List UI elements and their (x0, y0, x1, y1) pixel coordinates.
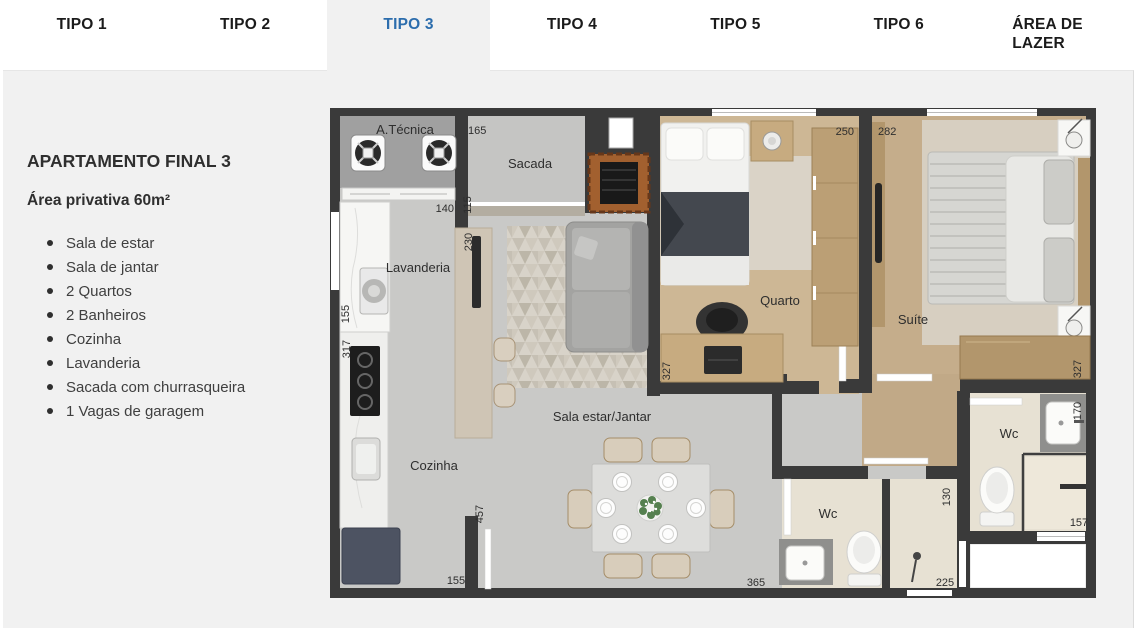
feature-item: Sala de estar (47, 232, 327, 256)
room-label-atecnica: A.Técnica (376, 122, 435, 137)
tab-tipo-2[interactable]: TIPO 2 (163, 0, 326, 70)
tab-tipo-1[interactable]: TIPO 1 (0, 0, 163, 70)
feature-item: Cozinha (47, 328, 327, 352)
dim-140: 140 (436, 203, 454, 215)
tab-tipo-3[interactable]: TIPO 3 (327, 0, 490, 70)
apartment-info: APARTAMENTO FINAL 3 Área privativa 60m² … (27, 151, 327, 424)
tab-label: TIPO 5 (710, 15, 760, 34)
dim-365: 365 (747, 577, 765, 589)
feature-item: Lavanderia (47, 352, 327, 376)
tab-label: TIPO 6 (874, 15, 924, 34)
tab-label: ÁREA DE LAZER (1012, 15, 1112, 53)
room-label-lavanderia: Lavanderia (386, 260, 451, 275)
feature-item: 1 Vagas de garagem (47, 400, 327, 424)
floor-plan-image: A.Técnica 165 Sacada 115 140 230 Lavande… (330, 108, 1096, 598)
fridge-icon (342, 528, 400, 584)
room-label-cozinha: Cozinha (410, 458, 458, 473)
dim-327-suite: 327 (1072, 360, 1084, 378)
tab-label: TIPO 2 (220, 15, 270, 34)
tab-bar: TIPO 1 TIPO 2 TIPO 3 TIPO 4 TIPO 5 TIPO … (0, 0, 1144, 70)
dim-282: 282 (878, 126, 896, 138)
tab-tipo-4[interactable]: TIPO 4 (490, 0, 653, 70)
dim-230: 230 (463, 233, 475, 251)
room-label-sacada: Sacada (508, 156, 553, 171)
dim-155-left: 155 (340, 305, 352, 323)
tab-tipo-6[interactable]: TIPO 6 (817, 0, 980, 70)
apartment-title: APARTAMENTO FINAL 3 (27, 151, 327, 172)
feature-item: Sacada com churrasqueira (47, 376, 327, 400)
dim-130: 130 (941, 488, 953, 506)
sofa (566, 222, 648, 352)
dim-250: 250 (836, 126, 854, 138)
private-area-subtitle: Área privativa 60m² (27, 192, 327, 210)
tab-tipo-5[interactable]: TIPO 5 (654, 0, 817, 70)
dim-165: 165 (468, 125, 486, 137)
dim-157: 157 (1070, 517, 1088, 529)
balcony-parapet (468, 202, 585, 216)
tab-label: TIPO 3 (383, 15, 433, 34)
room-label-wc-social: Wc (819, 506, 838, 521)
tab-content-panel: APARTAMENTO FINAL 3 Área privativa 60m² … (3, 70, 1134, 628)
tab-label: TIPO 4 (547, 15, 597, 34)
dim-225: 225 (936, 577, 954, 589)
kitchen-counter (340, 332, 388, 528)
dim-317: 317 (341, 340, 353, 358)
room-label-sala: Sala estar/Jantar (553, 409, 652, 424)
dim-170: 170 (1072, 402, 1084, 420)
feature-list: Sala de estar Sala de jantar 2 Quartos 2… (27, 232, 327, 424)
room-label-wc-suite: Wc (1000, 426, 1019, 441)
feature-item: 2 Banheiros (47, 304, 327, 328)
feature-item: Sala de jantar (47, 256, 327, 280)
dim-327-quarto: 327 (661, 362, 673, 380)
dim-115: 115 (462, 196, 474, 214)
tab-area-de-lazer[interactable]: ÁREA DE LAZER (981, 0, 1144, 70)
dim-457: 457 (474, 505, 486, 523)
room-label-suite: Suíte (898, 312, 928, 327)
feature-item: 2 Quartos (47, 280, 327, 304)
room-label-quarto: Quarto (760, 293, 800, 308)
bedroom-quarto (661, 121, 858, 382)
dim-155-bottom: 155 (447, 575, 465, 587)
tab-label: TIPO 1 (57, 15, 107, 34)
